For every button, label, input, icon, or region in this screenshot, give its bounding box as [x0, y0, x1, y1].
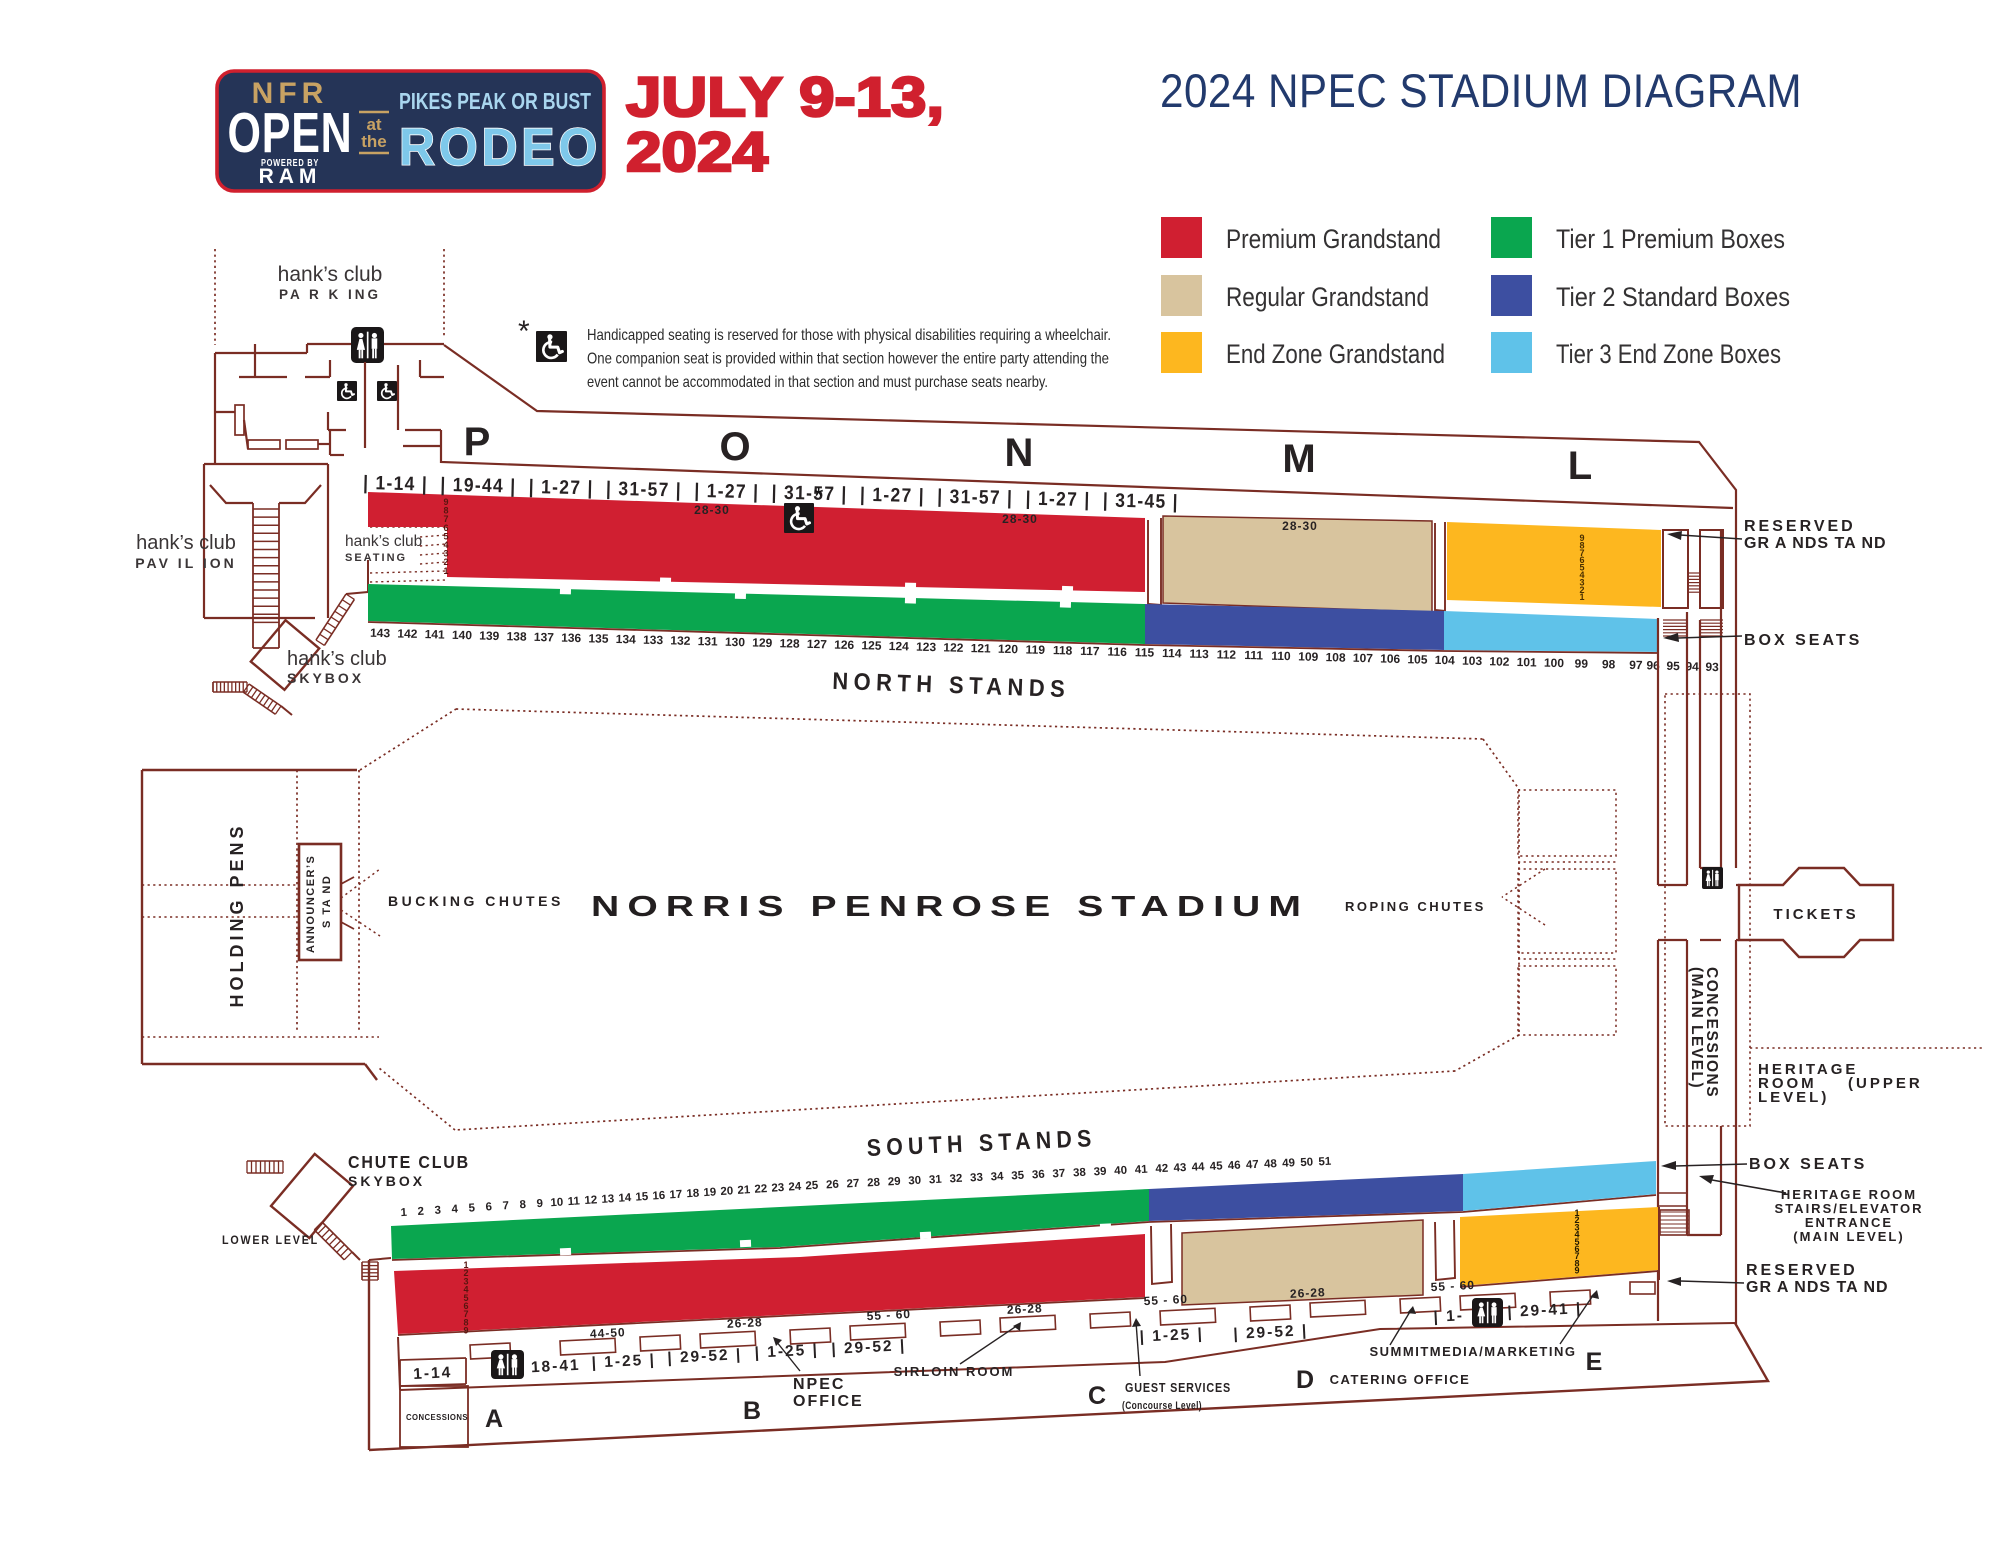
- svg-text:39: 39: [1093, 1166, 1106, 1179]
- svg-text:22: 22: [754, 1183, 767, 1196]
- svg-text:BUCKING CHUTES: BUCKING CHUTES: [388, 893, 564, 909]
- svg-text:(UPPER: (UPPER: [1848, 1075, 1923, 1092]
- svg-text:N: N: [1005, 431, 1034, 475]
- svg-text:107: 107: [1353, 651, 1374, 665]
- svg-text:PAV IL ION: PAV IL ION: [135, 555, 237, 571]
- svg-text:41: 41: [1135, 1164, 1149, 1177]
- svg-text:119: 119: [1025, 642, 1045, 656]
- svg-text:5: 5: [468, 1202, 476, 1214]
- svg-text:14: 14: [618, 1192, 632, 1205]
- svg-text:ENTRANCE: ENTRANCE: [1805, 1215, 1893, 1230]
- svg-text:133: 133: [643, 633, 664, 647]
- svg-text:35: 35: [1011, 1170, 1025, 1183]
- svg-text:99: 99: [1574, 656, 1588, 670]
- svg-text:97: 97: [1629, 658, 1643, 672]
- svg-text:40: 40: [1114, 1165, 1127, 1178]
- svg-text:hank’s club: hank’s club: [345, 533, 422, 550]
- svg-text:45: 45: [1209, 1160, 1223, 1173]
- svg-text:33: 33: [970, 1172, 983, 1185]
- svg-text:9: 9: [463, 1326, 468, 1336]
- svg-text:55 - 60: 55 - 60: [866, 1307, 911, 1323]
- svg-text:138: 138: [506, 629, 527, 643]
- svg-text:SEATING: SEATING: [345, 552, 407, 564]
- svg-text:2024 NPEC STADIUM DIAGRAM: 2024 NPEC STADIUM DIAGRAM: [1160, 64, 1802, 117]
- svg-text:113: 113: [1189, 647, 1209, 661]
- svg-text:O: O: [719, 425, 750, 469]
- svg-text:103: 103: [1462, 654, 1483, 668]
- svg-text:| 1-25 |: | 1-25 |: [754, 1341, 819, 1361]
- svg-text:L: L: [1568, 444, 1592, 488]
- svg-text:9: 9: [536, 1198, 543, 1210]
- svg-text:End Zone Grandstand: End Zone Grandstand: [1226, 339, 1445, 369]
- svg-text:21: 21: [737, 1184, 751, 1197]
- svg-text:122: 122: [943, 640, 964, 654]
- svg-text:STAIRS/ELEVATOR: STAIRS/ELEVATOR: [1775, 1201, 1924, 1216]
- svg-text:19: 19: [703, 1186, 716, 1199]
- svg-text:(MAIN LEVEL): (MAIN LEVEL): [1793, 1229, 1904, 1244]
- svg-text:Premium Grandstand: Premium Grandstand: [1226, 224, 1441, 254]
- svg-text:SIRLOIN ROOM: SIRLOIN ROOM: [894, 1364, 1015, 1379]
- svg-text:LEVEL): LEVEL): [1758, 1089, 1829, 1106]
- svg-text:121: 121: [971, 641, 992, 655]
- svg-text:NORRIS PENROSE STADIUM: NORRIS PENROSE STADIUM: [591, 891, 1309, 923]
- svg-text:105: 105: [1407, 652, 1428, 666]
- svg-text:CATERING OFFICE: CATERING OFFICE: [1330, 1372, 1471, 1387]
- svg-text:44: 44: [1191, 1161, 1205, 1174]
- svg-text:| 1-25 |: | 1-25 |: [1139, 1325, 1204, 1345]
- svg-text:26-28: 26-28: [1007, 1301, 1043, 1317]
- svg-text:93: 93: [1705, 660, 1719, 674]
- svg-text:28-30: 28-30: [1282, 519, 1318, 533]
- svg-text:OPEN: OPEN: [228, 101, 353, 165]
- svg-text:hank’s club: hank’s club: [278, 263, 383, 286]
- svg-text:28-30: 28-30: [694, 503, 730, 517]
- svg-text:9: 9: [1574, 1266, 1579, 1276]
- svg-text:128: 128: [779, 636, 800, 650]
- svg-text:31: 31: [929, 1174, 943, 1187]
- svg-text:116: 116: [1107, 645, 1127, 659]
- svg-text:BOX SEATS: BOX SEATS: [1749, 1156, 1867, 1173]
- svg-text:30: 30: [908, 1175, 921, 1188]
- svg-text:11: 11: [567, 1195, 580, 1208]
- svg-text:One companion seat is provided: One companion seat is provided within th…: [587, 351, 1109, 368]
- svg-text:| 1-: | 1-: [1433, 1307, 1464, 1325]
- svg-text:114: 114: [1162, 646, 1182, 660]
- svg-text:44-50: 44-50: [590, 1325, 626, 1341]
- svg-text:B: B: [743, 1397, 761, 1425]
- svg-text:38: 38: [1073, 1167, 1087, 1180]
- svg-text:6: 6: [485, 1201, 492, 1213]
- svg-text:RAM: RAM: [259, 165, 322, 188]
- svg-text:108: 108: [1325, 650, 1346, 664]
- svg-text:PA R K ING: PA R K ING: [279, 287, 381, 302]
- svg-text:47: 47: [1246, 1159, 1259, 1172]
- svg-text:13: 13: [601, 1193, 614, 1206]
- svg-text:Tier 2 Standard Boxes: Tier 2 Standard Boxes: [1556, 282, 1790, 312]
- svg-text:34: 34: [990, 1171, 1004, 1184]
- svg-text:GR A NDS TA ND: GR A NDS TA ND: [1746, 1279, 1889, 1296]
- svg-text:A: A: [485, 1405, 503, 1433]
- svg-text:ROPING CHUTES: ROPING CHUTES: [1345, 899, 1486, 914]
- svg-text:M: M: [1282, 437, 1315, 481]
- svg-text:104: 104: [1435, 653, 1456, 667]
- svg-text:D: D: [1296, 1366, 1314, 1394]
- svg-text:106: 106: [1380, 652, 1401, 666]
- svg-text:132: 132: [670, 633, 691, 647]
- svg-text:136: 136: [561, 631, 582, 645]
- svg-text:8: 8: [519, 1199, 527, 1211]
- svg-text:Handicapped seating is reserve: Handicapped seating is reserved for thos…: [587, 327, 1111, 344]
- svg-text:3: 3: [434, 1205, 441, 1217]
- svg-text:12: 12: [584, 1194, 597, 1207]
- svg-text:1: 1: [443, 566, 448, 576]
- svg-text:135: 135: [588, 631, 609, 645]
- svg-text:*: *: [518, 315, 530, 348]
- svg-text:10: 10: [550, 1197, 563, 1210]
- svg-text:142: 142: [397, 626, 418, 640]
- svg-text:Regular Grandstand: Regular Grandstand: [1226, 282, 1429, 312]
- svg-text:HERITAGE ROOM: HERITAGE ROOM: [1781, 1187, 1917, 1202]
- svg-text:P: P: [464, 420, 491, 464]
- svg-text:120: 120: [998, 642, 1019, 656]
- svg-text:43: 43: [1173, 1162, 1186, 1175]
- svg-text:hank’s club: hank’s club: [287, 648, 387, 670]
- svg-text:S TA ND: S TA ND: [321, 875, 333, 928]
- svg-text:26-28: 26-28: [1290, 1285, 1326, 1301]
- svg-text:E: E: [1586, 1348, 1603, 1376]
- svg-text:CHUTE CLUB: CHUTE CLUB: [348, 1152, 470, 1172]
- svg-text:2: 2: [417, 1206, 424, 1218]
- svg-text:Tier 1 Premium Boxes: Tier 1 Premium Boxes: [1556, 224, 1785, 254]
- svg-text:123: 123: [916, 640, 937, 654]
- svg-text:139: 139: [479, 629, 500, 643]
- svg-text:18: 18: [686, 1188, 700, 1201]
- svg-text:(Concourse Level): (Concourse Level): [1122, 1400, 1202, 1412]
- svg-text:27: 27: [846, 1178, 859, 1191]
- svg-text:140: 140: [452, 628, 473, 642]
- svg-text:SKYBOX: SKYBOX: [287, 670, 364, 686]
- svg-text:HOLDING PENS: HOLDING PENS: [227, 822, 247, 1007]
- svg-text:| 1-25 |: | 1-25 |: [591, 1351, 656, 1371]
- svg-text:the: the: [361, 132, 387, 151]
- svg-text:LOWER LEVEL: LOWER LEVEL: [222, 1233, 319, 1247]
- svg-text:143: 143: [370, 626, 391, 640]
- svg-text:1: 1: [1579, 592, 1584, 602]
- svg-text:OFFICE: OFFICE: [793, 1393, 864, 1410]
- svg-text:51: 51: [1318, 1156, 1332, 1169]
- svg-text:28: 28: [867, 1177, 881, 1190]
- svg-text:134: 134: [616, 632, 637, 646]
- svg-text:16: 16: [652, 1190, 665, 1203]
- svg-text:26: 26: [826, 1179, 839, 1192]
- svg-text:115: 115: [1135, 645, 1155, 659]
- svg-text:111: 111: [1244, 648, 1263, 662]
- svg-text:95: 95: [1666, 659, 1680, 673]
- svg-text:130: 130: [725, 635, 746, 649]
- svg-text:29: 29: [887, 1176, 900, 1189]
- svg-text:50: 50: [1300, 1156, 1313, 1169]
- svg-text:28-30: 28-30: [1002, 512, 1038, 526]
- svg-text:SKYBOX: SKYBOX: [348, 1173, 425, 1189]
- svg-text:25: 25: [805, 1180, 819, 1193]
- svg-text:125: 125: [861, 638, 882, 652]
- svg-text:23: 23: [771, 1182, 784, 1195]
- svg-text:49: 49: [1282, 1157, 1295, 1170]
- svg-text:JULY 9-13,: JULY 9-13,: [626, 65, 944, 128]
- svg-text:36: 36: [1032, 1169, 1045, 1182]
- svg-text:137: 137: [534, 630, 555, 644]
- svg-text:26-28: 26-28: [727, 1315, 763, 1331]
- svg-text:109: 109: [1298, 649, 1319, 663]
- svg-text:110: 110: [1271, 649, 1291, 663]
- svg-text:101: 101: [1517, 655, 1538, 669]
- svg-text:118: 118: [1053, 643, 1073, 657]
- svg-text:RESERVED: RESERVED: [1744, 518, 1856, 535]
- svg-text:141: 141: [425, 627, 446, 641]
- svg-text:(MAIN LEVEL): (MAIN LEVEL): [1688, 967, 1705, 1089]
- svg-text:124: 124: [889, 639, 910, 653]
- svg-text:24: 24: [788, 1181, 802, 1194]
- svg-text:37: 37: [1052, 1168, 1065, 1181]
- svg-text:4: 4: [451, 1203, 459, 1215]
- svg-text:18-41: 18-41: [531, 1357, 581, 1376]
- svg-text:GUEST SERVICES: GUEST SERVICES: [1125, 1380, 1231, 1395]
- svg-text:102: 102: [1489, 654, 1510, 668]
- svg-text:126: 126: [834, 638, 855, 652]
- svg-text:100: 100: [1544, 656, 1565, 670]
- svg-text:CONCESSIONS: CONCESSIONS: [406, 1412, 468, 1422]
- svg-text:112: 112: [1217, 647, 1237, 661]
- svg-text:15: 15: [635, 1191, 649, 1204]
- svg-text:C: C: [1088, 1382, 1106, 1410]
- svg-text:7: 7: [502, 1200, 509, 1212]
- svg-text:127: 127: [807, 637, 828, 651]
- svg-text:17: 17: [669, 1189, 682, 1202]
- svg-text:TICKETS: TICKETS: [1773, 906, 1858, 923]
- svg-text:RODEO: RODEO: [399, 118, 601, 177]
- svg-text:98: 98: [1602, 657, 1616, 671]
- svg-text:GR A NDS TA ND: GR A NDS TA ND: [1744, 535, 1887, 552]
- svg-text:117: 117: [1080, 644, 1100, 658]
- svg-text:55 - 60: 55 - 60: [1143, 1292, 1188, 1308]
- svg-text:48: 48: [1264, 1158, 1278, 1171]
- svg-text:BOX SEATS: BOX SEATS: [1744, 632, 1862, 649]
- svg-text:32: 32: [949, 1173, 962, 1186]
- svg-text:RESERVED: RESERVED: [1746, 1262, 1858, 1279]
- svg-text:129: 129: [752, 636, 773, 650]
- svg-text:46: 46: [1228, 1160, 1241, 1173]
- svg-text:*: *: [814, 483, 823, 510]
- svg-text:20: 20: [720, 1185, 733, 1198]
- svg-text:hank’s club: hank’s club: [136, 532, 236, 554]
- svg-text:NPEC: NPEC: [793, 1376, 845, 1393]
- svg-text:55 - 60: 55 - 60: [1430, 1278, 1475, 1294]
- svg-text:42: 42: [1155, 1163, 1168, 1176]
- svg-text:1-14: 1-14: [413, 1364, 453, 1383]
- svg-text:PIKES PEAK OR BUST: PIKES PEAK OR BUST: [399, 88, 591, 114]
- svg-text:ANNOUNCER’S: ANNOUNCER’S: [305, 855, 317, 953]
- svg-text:2024: 2024: [626, 120, 768, 183]
- svg-text:1: 1: [400, 1207, 408, 1219]
- svg-text:131: 131: [698, 634, 719, 648]
- svg-text:SUMMITMEDIA/MARKETING: SUMMITMEDIA/MARKETING: [1370, 1344, 1577, 1359]
- svg-text:event cannot be accommodated i: event cannot be accommodated in that sec…: [587, 374, 1048, 391]
- svg-text:Tier 3 End Zone Boxes: Tier 3 End Zone Boxes: [1556, 339, 1781, 369]
